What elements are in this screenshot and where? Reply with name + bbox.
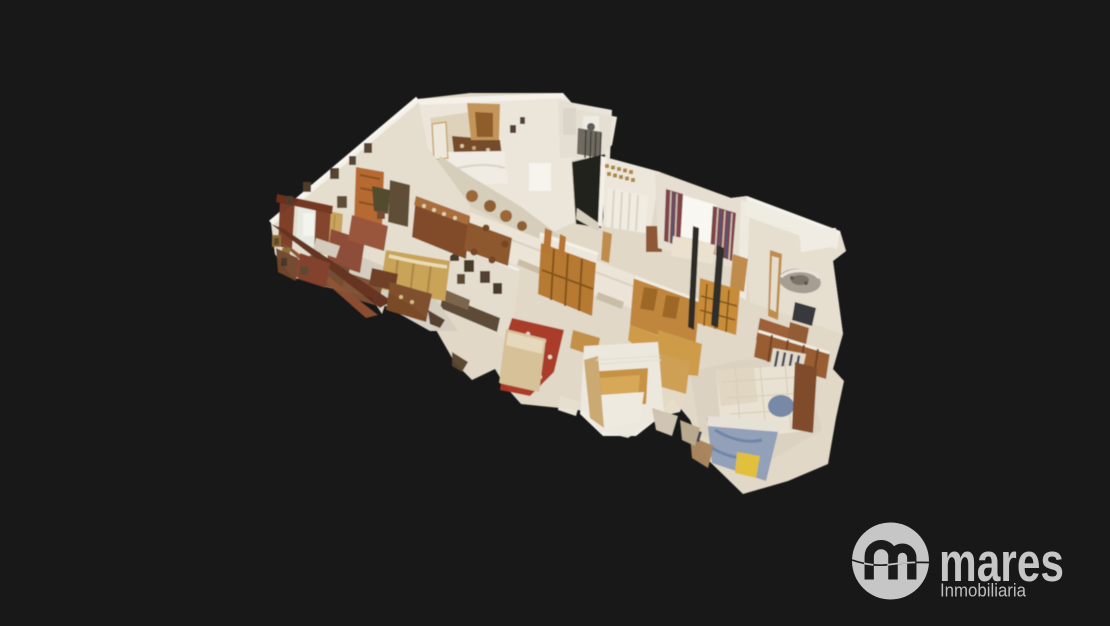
svg-text:Inmobiliaria: Inmobiliaria: [940, 580, 1027, 601]
